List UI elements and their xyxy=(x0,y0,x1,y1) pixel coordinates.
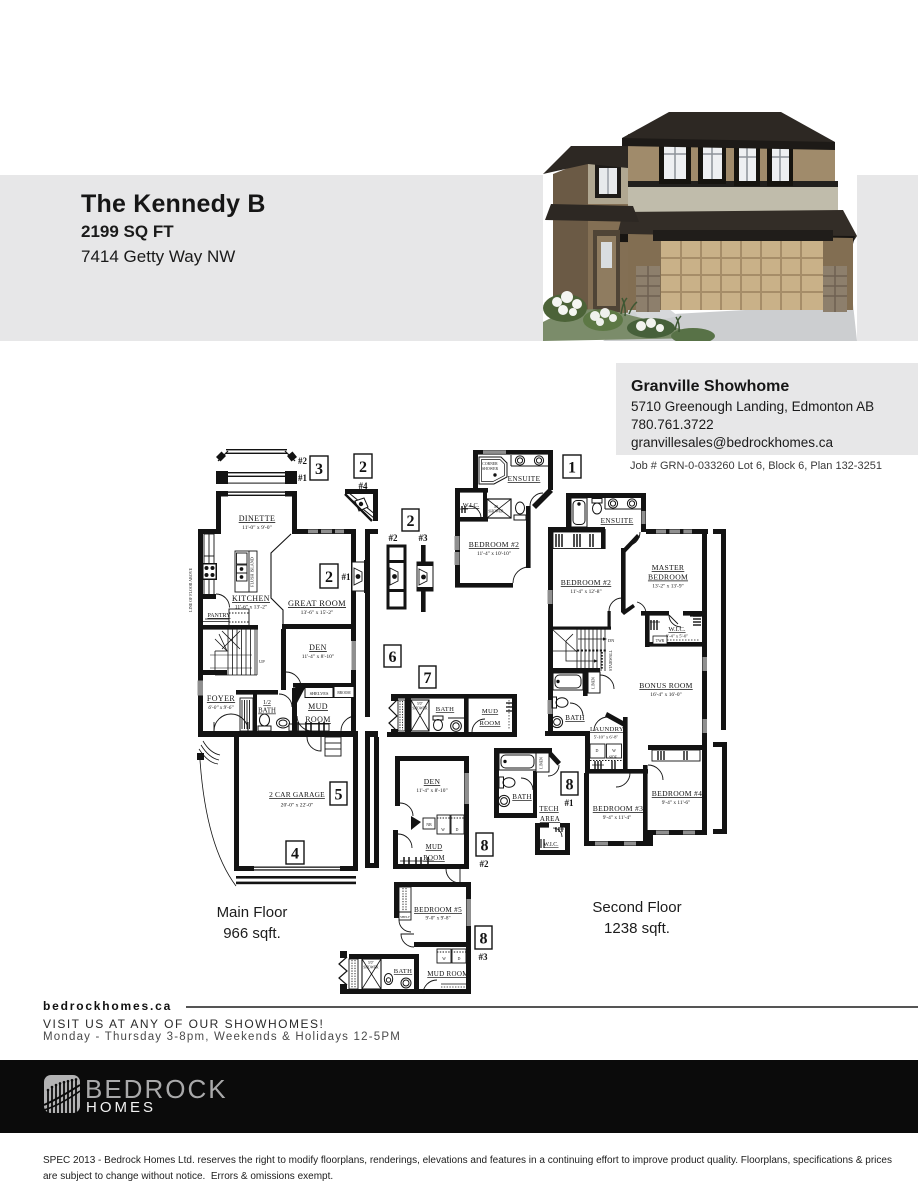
svg-text:#1: #1 xyxy=(565,798,575,808)
svg-text:16'-4" x 16'-0": 16'-4" x 16'-0" xyxy=(650,692,682,698)
svg-text:9'-4" x 11'-4": 9'-4" x 11'-4" xyxy=(603,815,632,821)
svg-text:SHELVES: SHELVES xyxy=(310,691,329,696)
svg-text:BONUS ROOM: BONUS ROOM xyxy=(639,681,692,690)
svg-text:2: 2 xyxy=(359,459,367,476)
svg-text:4'0: 4'0 xyxy=(494,505,498,509)
svg-text:FLUSH ISLAND: FLUSH ISLAND xyxy=(250,557,255,587)
svg-text:8: 8 xyxy=(566,777,574,794)
svg-text:D: D xyxy=(456,828,459,832)
svg-text:TWR: TWR xyxy=(656,639,665,643)
svg-text:SHOWER: SHOWER xyxy=(363,966,379,970)
svg-text:5: 5 xyxy=(335,787,343,804)
svg-text:13'-6" x 15'-2": 13'-6" x 15'-2" xyxy=(301,610,334,616)
svg-text:FOYER: FOYER xyxy=(207,694,235,703)
svg-text:MUD: MUD xyxy=(426,844,443,851)
svg-text:SHOWER: SHOWER xyxy=(488,510,504,514)
svg-text:2 CAR GARAGE: 2 CAR GARAGE xyxy=(269,790,325,799)
svg-text:#2: #2 xyxy=(480,859,490,869)
svg-text:LINEN: LINEN xyxy=(540,757,544,769)
svg-text:5'0": 5'0" xyxy=(368,961,374,965)
svg-text:DEN: DEN xyxy=(424,777,441,786)
svg-text:11'-4" x 12'-8": 11'-4" x 12'-8" xyxy=(570,589,601,595)
svg-text:11'-4" x 10'-10": 11'-4" x 10'-10" xyxy=(477,551,511,557)
svg-text:3: 3 xyxy=(315,461,323,478)
svg-text:7: 7 xyxy=(424,670,432,687)
svg-text:11'-4" x 8'-10": 11'-4" x 8'-10" xyxy=(302,654,334,660)
svg-text:BROOM: BROOM xyxy=(337,691,351,695)
svg-text:W.I.C.: W.I.C. xyxy=(543,842,559,848)
svg-text:BEDROOM #2: BEDROOM #2 xyxy=(561,578,611,587)
svg-text:AREA: AREA xyxy=(540,815,560,823)
svg-text:#2: #2 xyxy=(389,533,399,543)
svg-text:BATH: BATH xyxy=(512,793,531,801)
svg-text:9'-4" x 11'-6": 9'-4" x 11'-6" xyxy=(662,800,691,806)
svg-text:LINEN: LINEN xyxy=(592,677,596,689)
svg-text:8: 8 xyxy=(480,931,488,948)
svg-text:MUD: MUD xyxy=(482,708,498,715)
svg-text:KITCHEN: KITCHEN xyxy=(232,594,270,603)
svg-text:#2: #2 xyxy=(298,456,308,466)
svg-text:D: D xyxy=(458,957,461,961)
svg-text:BEDROOM #2: BEDROOM #2 xyxy=(469,540,519,549)
svg-text:2: 2 xyxy=(325,569,333,586)
svg-text:#1: #1 xyxy=(342,572,352,582)
svg-text:9'-4" x 5'-0": 9'-4" x 5'-0" xyxy=(666,634,688,639)
svg-text:9'-0" x 9'-8": 9'-0" x 9'-8" xyxy=(425,916,450,922)
svg-text:ENSUITE: ENSUITE xyxy=(508,475,541,483)
svg-text:DEN: DEN xyxy=(309,643,327,652)
svg-text:DINETTE: DINETTE xyxy=(239,514,276,523)
svg-text:#3: #3 xyxy=(479,952,489,962)
svg-text:SIDE: SIDE xyxy=(609,756,618,760)
svg-text:W: W xyxy=(441,828,445,832)
svg-text:LINE OF FLOOR ABOVE: LINE OF FLOOR ABOVE xyxy=(188,567,193,611)
svg-text:11'-0" x 9'-0": 11'-0" x 9'-0" xyxy=(242,525,272,531)
svg-text:ENSUITE: ENSUITE xyxy=(601,517,634,525)
svg-text:20'-0" x 22'-0": 20'-0" x 22'-0" xyxy=(281,803,314,809)
svg-text:#1: #1 xyxy=(298,473,308,483)
svg-text:BEDROOM #4: BEDROOM #4 xyxy=(652,789,702,798)
svg-text:BATH: BATH xyxy=(394,968,412,975)
svg-text:MASTER: MASTER xyxy=(652,563,685,572)
svg-text:BEDROOM #3: BEDROOM #3 xyxy=(593,804,643,813)
svg-text:1/2: 1/2 xyxy=(263,700,271,706)
svg-text:5'0": 5'0" xyxy=(417,702,423,706)
svg-text:#3: #3 xyxy=(419,533,429,543)
svg-text:1: 1 xyxy=(568,460,576,477)
svg-text:6'-0" x 9'-6": 6'-0" x 9'-6" xyxy=(208,705,234,711)
svg-text:5'-10" x 6'-8": 5'-10" x 6'-8" xyxy=(594,735,619,740)
svg-text:SHOWER: SHOWER xyxy=(482,467,498,471)
svg-text:ROOM: ROOM xyxy=(480,720,501,727)
svg-text:ROOM: ROOM xyxy=(305,715,331,724)
svg-text:DN: DN xyxy=(608,638,615,643)
svg-text:W: W xyxy=(612,748,616,753)
svg-text:4: 4 xyxy=(291,846,299,863)
svg-text:MUD: MUD xyxy=(308,702,328,711)
svg-text:BEDROOM: BEDROOM xyxy=(648,573,688,582)
svg-text:MUD ROOM: MUD ROOM xyxy=(427,970,469,978)
svg-text:11'-6" x 13'-2": 11'-6" x 13'-2" xyxy=(235,605,267,611)
svg-text:13'-2" x 13'-9": 13'-2" x 13'-9" xyxy=(652,584,684,590)
svg-text:SHELF: SHELF xyxy=(400,915,410,919)
svg-text:TECH: TECH xyxy=(539,805,558,813)
svg-text:BEDROOM #5: BEDROOM #5 xyxy=(414,906,462,914)
svg-text:6: 6 xyxy=(389,649,397,666)
svg-text:CORNER: CORNER xyxy=(482,462,498,466)
svg-text:UP: UP xyxy=(259,659,265,664)
svg-text:NB: NB xyxy=(426,823,432,827)
svg-text:11'-4" x 8'-10": 11'-4" x 8'-10" xyxy=(416,788,447,794)
svg-text:SHOWER: SHOWER xyxy=(412,707,428,711)
svg-text:2: 2 xyxy=(407,513,415,530)
svg-text:BATH: BATH xyxy=(565,714,584,722)
svg-text:W: W xyxy=(442,957,446,961)
svg-text:W.I.C.: W.I.C. xyxy=(668,626,686,633)
svg-text:STAIRWALL: STAIRWALL xyxy=(609,649,613,671)
svg-text:BATH: BATH xyxy=(436,706,454,713)
svg-text:LAUNDRY: LAUNDRY xyxy=(590,726,624,733)
svg-text:PANTRY: PANTRY xyxy=(207,613,231,619)
svg-text:D: D xyxy=(596,748,599,753)
svg-text:8: 8 xyxy=(481,838,489,855)
svg-text:GREAT ROOM: GREAT ROOM xyxy=(288,599,346,608)
svg-text:BATH: BATH xyxy=(258,708,276,715)
